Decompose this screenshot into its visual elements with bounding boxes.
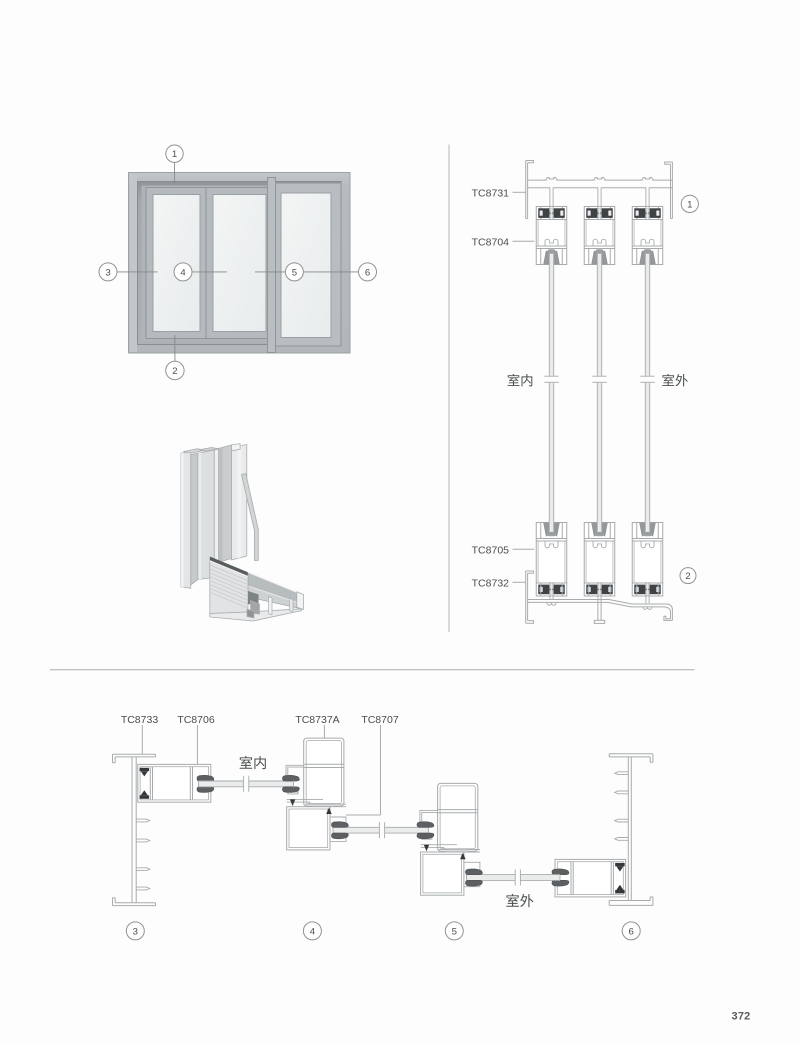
svg-text:2: 2 — [172, 366, 177, 377]
svg-text:TC8732: TC8732 — [472, 577, 510, 589]
svg-text:TC8706: TC8706 — [177, 714, 215, 726]
svg-text:TC8737A: TC8737A — [295, 714, 339, 726]
svg-text:TC8704: TC8704 — [472, 237, 510, 249]
svg-text:6: 6 — [629, 926, 634, 937]
svg-text:1: 1 — [172, 149, 177, 160]
svg-text:4: 4 — [180, 267, 186, 278]
svg-text:TC8707: TC8707 — [361, 714, 399, 726]
svg-text:1: 1 — [687, 199, 692, 210]
svg-text:4: 4 — [310, 926, 316, 937]
svg-text:6: 6 — [365, 267, 370, 278]
svg-text:2: 2 — [685, 571, 690, 582]
svg-text:TC8733: TC8733 — [121, 714, 159, 726]
svg-text:5: 5 — [292, 267, 297, 278]
svg-text:5: 5 — [452, 926, 457, 937]
svg-text:TC8731: TC8731 — [472, 188, 510, 200]
svg-text:3: 3 — [105, 267, 110, 278]
svg-text:3: 3 — [133, 926, 138, 937]
svg-text:372: 372 — [732, 1011, 751, 1023]
svg-text:TC8705: TC8705 — [472, 544, 510, 556]
